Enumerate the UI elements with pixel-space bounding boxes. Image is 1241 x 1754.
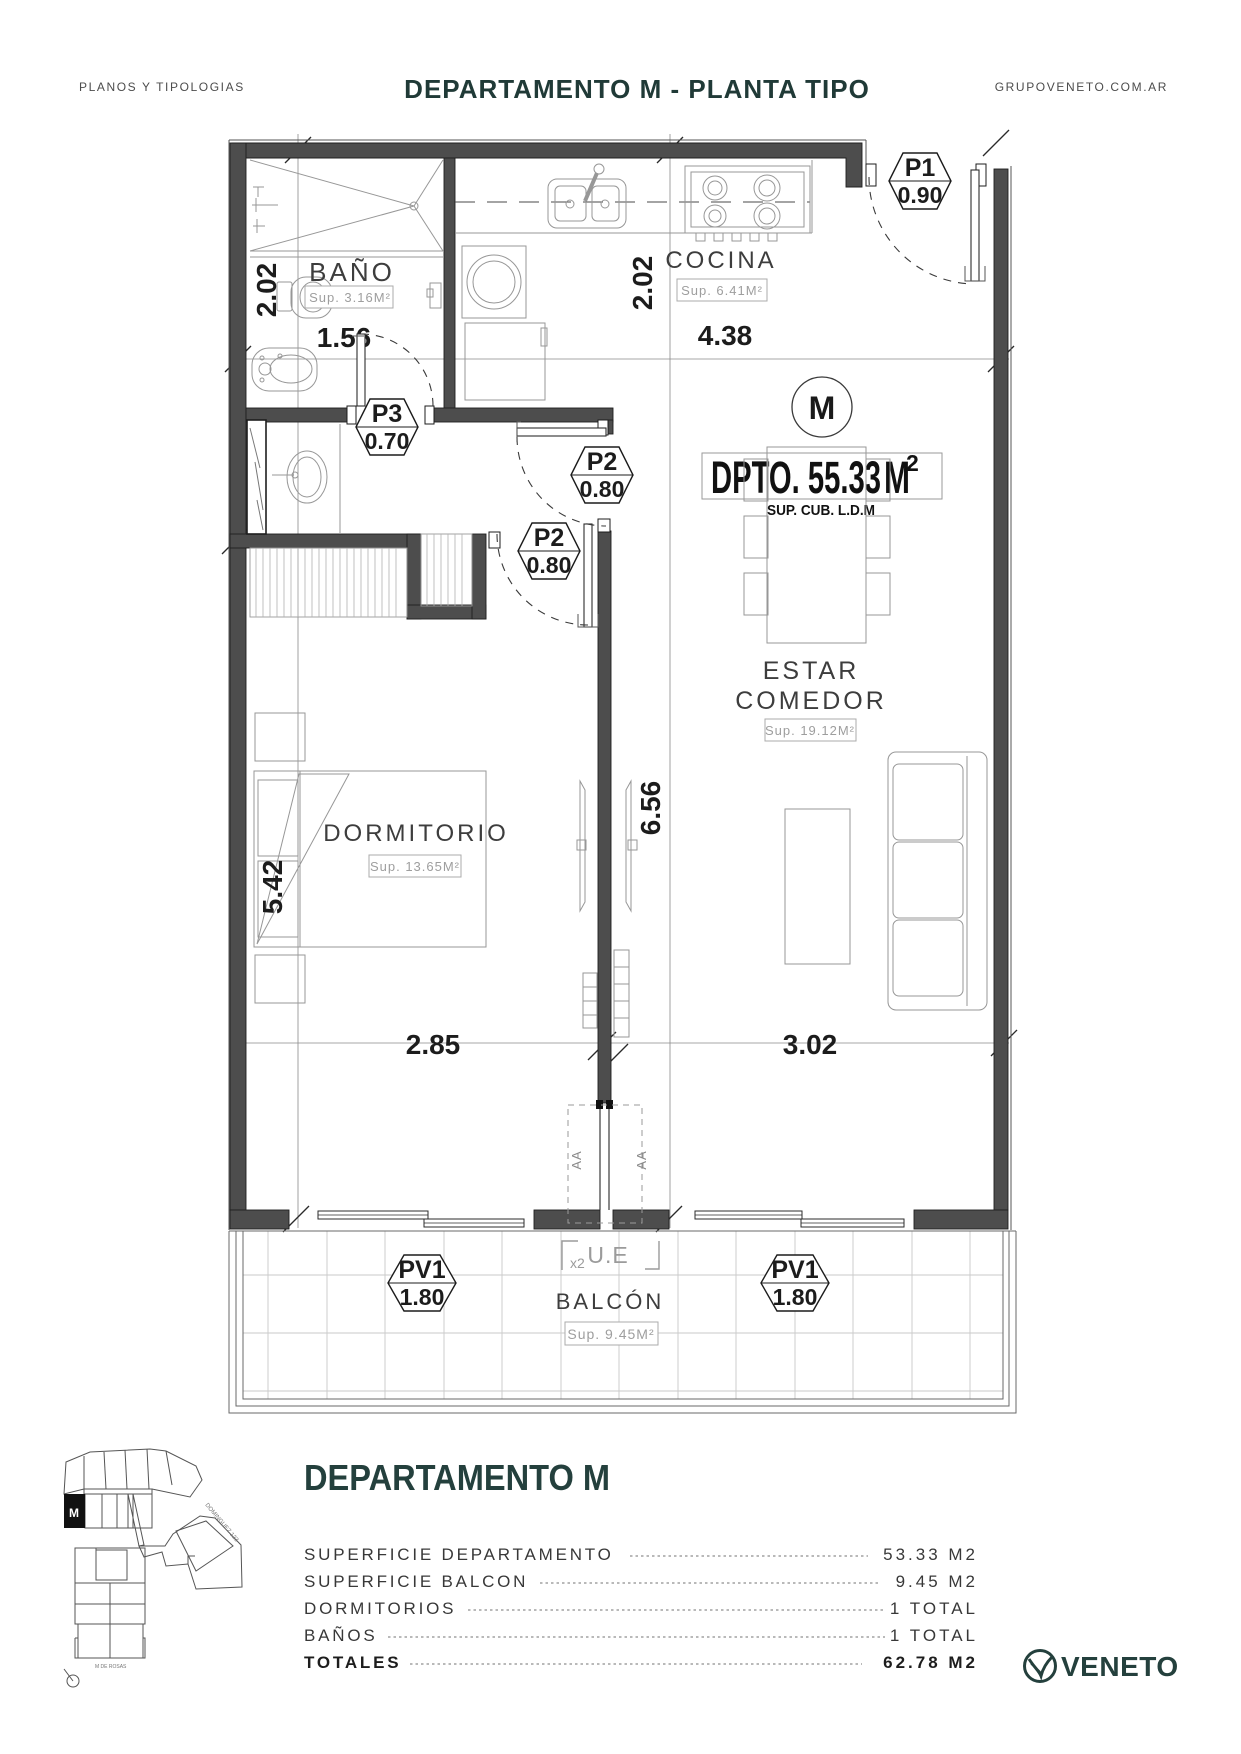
svg-text:2.02: 2.02 bbox=[627, 256, 658, 311]
svg-text:AA: AA bbox=[634, 1150, 649, 1169]
svg-text:VENETO: VENETO bbox=[1061, 1651, 1179, 1682]
svg-text:2: 2 bbox=[906, 450, 919, 476]
svg-text:4.38: 4.38 bbox=[698, 320, 753, 351]
svg-text:U.E: U.E bbox=[587, 1242, 628, 1268]
svg-text:SUPERFICIE BALCON: SUPERFICIE BALCON bbox=[304, 1572, 528, 1591]
svg-text:1.80: 1.80 bbox=[400, 1284, 445, 1310]
svg-text:1 TOTAL: 1 TOTAL bbox=[890, 1626, 978, 1645]
svg-text:P3: P3 bbox=[372, 400, 403, 428]
svg-text:0.90: 0.90 bbox=[898, 182, 943, 208]
svg-text:AA: AA bbox=[569, 1150, 584, 1169]
svg-text:3.02: 3.02 bbox=[783, 1029, 838, 1060]
svg-text:COCINA: COCINA bbox=[665, 247, 776, 274]
svg-text:DEPARTAMENTO M: DEPARTAMENTO M bbox=[304, 1457, 610, 1498]
svg-text:BAÑOS: BAÑOS bbox=[304, 1626, 378, 1645]
svg-text:53.33 M2: 53.33 M2 bbox=[883, 1545, 978, 1564]
svg-text:1 TOTAL: 1 TOTAL bbox=[890, 1599, 978, 1618]
svg-text:2.85: 2.85 bbox=[406, 1029, 461, 1060]
svg-text:DORMITORIOS: DORMITORIOS bbox=[304, 1599, 456, 1618]
svg-text:BAÑO: BAÑO bbox=[309, 257, 395, 287]
svg-text:0.70: 0.70 bbox=[365, 428, 410, 454]
svg-text:P1: P1 bbox=[905, 154, 936, 182]
svg-text:TOTALES: TOTALES bbox=[304, 1653, 401, 1672]
svg-text:6.56: 6.56 bbox=[635, 781, 666, 836]
svg-text:DPTO. 55.33: DPTO. 55.33 bbox=[711, 452, 881, 503]
svg-text:0.80: 0.80 bbox=[527, 552, 572, 578]
svg-text:GRUPOVENETO.COM.AR: GRUPOVENETO.COM.AR bbox=[995, 80, 1168, 94]
svg-text:P2: P2 bbox=[534, 524, 565, 552]
svg-text:0.80: 0.80 bbox=[580, 476, 625, 502]
svg-text:SUPERFICIE DEPARTAMENTO: SUPERFICIE DEPARTAMENTO bbox=[304, 1545, 614, 1564]
svg-text:x2: x2 bbox=[570, 1255, 585, 1271]
svg-text:COMEDOR: COMEDOR bbox=[735, 687, 887, 715]
svg-text:Sup. 9.45M²: Sup. 9.45M² bbox=[567, 1326, 654, 1342]
svg-text:SUP. CUB. L.D.M: SUP. CUB. L.D.M bbox=[767, 502, 875, 519]
svg-text:M: M bbox=[809, 390, 836, 426]
svg-text:BALCÓN: BALCÓN bbox=[556, 1289, 664, 1314]
svg-text:ESTAR: ESTAR bbox=[763, 657, 860, 685]
svg-text:PV1: PV1 bbox=[771, 1256, 818, 1284]
svg-text:Sup. 19.12M²: Sup. 19.12M² bbox=[765, 723, 855, 738]
svg-text:PLANOS Y TIPOLOGIAS: PLANOS Y TIPOLOGIAS bbox=[79, 80, 245, 94]
svg-text:Sup. 6.41M²: Sup. 6.41M² bbox=[681, 283, 763, 298]
svg-text:PV1: PV1 bbox=[398, 1256, 445, 1284]
svg-text:62.78 M2: 62.78 M2 bbox=[883, 1653, 978, 1672]
svg-text:M: M bbox=[69, 1506, 79, 1520]
svg-text:DORMITORIO: DORMITORIO bbox=[323, 820, 509, 847]
svg-text:2.02: 2.02 bbox=[251, 263, 282, 318]
svg-text:Sup. 13.65M²: Sup. 13.65M² bbox=[370, 859, 460, 874]
svg-text:M DE ROSAS: M DE ROSAS bbox=[95, 1664, 127, 1670]
svg-text:DEPARTAMENTO M - PLANTA TIPO: DEPARTAMENTO M - PLANTA TIPO bbox=[404, 74, 870, 104]
svg-text:P2: P2 bbox=[587, 448, 618, 476]
svg-text:9.45 M2: 9.45 M2 bbox=[896, 1572, 978, 1591]
svg-text:Sup. 3.16M²: Sup. 3.16M² bbox=[309, 290, 391, 305]
svg-text:1.80: 1.80 bbox=[773, 1284, 818, 1310]
svg-text:5.42: 5.42 bbox=[257, 860, 288, 915]
